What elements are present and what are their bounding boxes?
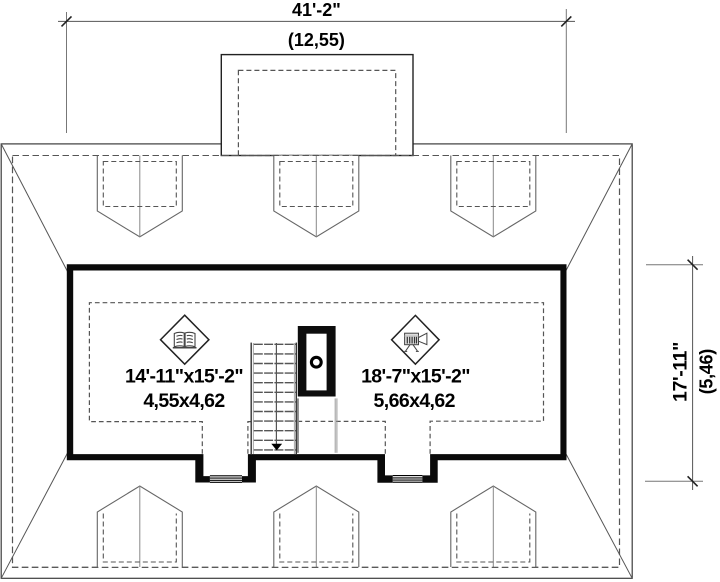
svg-text:14'-11"x15'-2": 14'-11"x15'-2" xyxy=(125,365,243,387)
svg-text:5,66x4,62: 5,66x4,62 xyxy=(374,390,456,412)
svg-text:41'-2": 41'-2" xyxy=(292,0,341,20)
svg-text:17'-11": 17'-11" xyxy=(670,342,692,402)
svg-text:(12,55): (12,55) xyxy=(288,30,345,50)
svg-text:4,55x4,62: 4,55x4,62 xyxy=(143,390,225,412)
svg-text:18'-7"x15'-2": 18'-7"x15'-2" xyxy=(361,365,470,387)
svg-text:(5,46): (5,46) xyxy=(697,349,717,395)
